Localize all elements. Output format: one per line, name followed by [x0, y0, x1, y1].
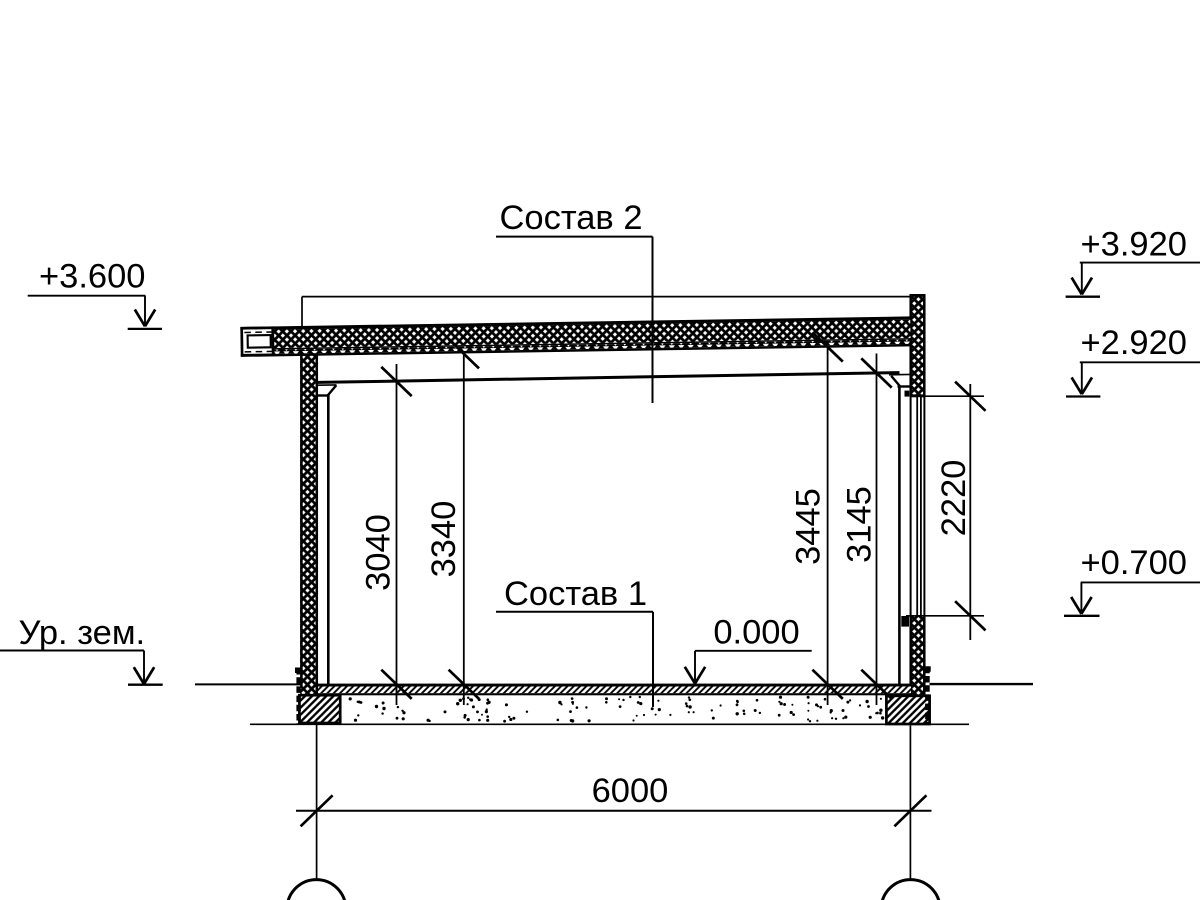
- svg-text:+0.700: +0.700: [1081, 544, 1187, 582]
- svg-text:3445: 3445: [790, 488, 828, 565]
- svg-text:Состав 1: Состав 1: [504, 575, 647, 613]
- svg-text:3145: 3145: [841, 486, 879, 563]
- svg-text:0.000: 0.000: [713, 614, 799, 652]
- svg-text:Состав 2: Состав 2: [499, 199, 642, 237]
- svg-text:6000: 6000: [592, 772, 669, 810]
- svg-text:+2.920: +2.920: [1081, 324, 1187, 362]
- svg-text:2220: 2220: [935, 460, 973, 537]
- svg-text:3040: 3040: [360, 514, 398, 591]
- svg-text:+3.920: +3.920: [1081, 225, 1187, 263]
- svg-text:Ур. зем.: Ур. зем.: [19, 614, 146, 652]
- svg-text:+3.600: +3.600: [39, 258, 145, 296]
- svg-text:3340: 3340: [425, 501, 463, 578]
